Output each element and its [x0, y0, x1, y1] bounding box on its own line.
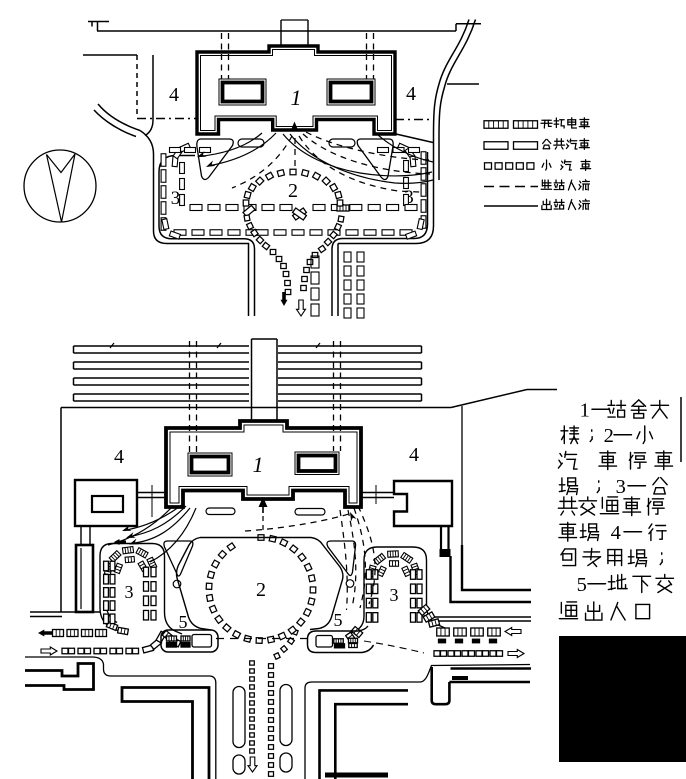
- svg-text:1: 1: [253, 452, 264, 477]
- svg-text:5: 5: [179, 612, 188, 632]
- svg-text:5: 5: [334, 610, 343, 630]
- svg-text:2: 2: [288, 180, 298, 202]
- svg-text:1: 1: [291, 85, 302, 110]
- svg-text:4: 4: [169, 84, 179, 106]
- svg-text:4: 4: [611, 522, 621, 544]
- svg-text:3: 3: [390, 585, 399, 605]
- svg-text:4: 4: [406, 83, 416, 105]
- svg-text:1: 1: [580, 399, 590, 421]
- svg-text:4: 4: [409, 444, 419, 466]
- svg-text:4: 4: [114, 446, 124, 468]
- svg-text:3: 3: [171, 188, 181, 209]
- svg-text:3: 3: [125, 582, 134, 602]
- svg-text:5: 5: [577, 574, 587, 596]
- svg-text:3: 3: [616, 476, 626, 498]
- svg-text:2: 2: [604, 425, 614, 447]
- svg-text:2: 2: [256, 579, 266, 601]
